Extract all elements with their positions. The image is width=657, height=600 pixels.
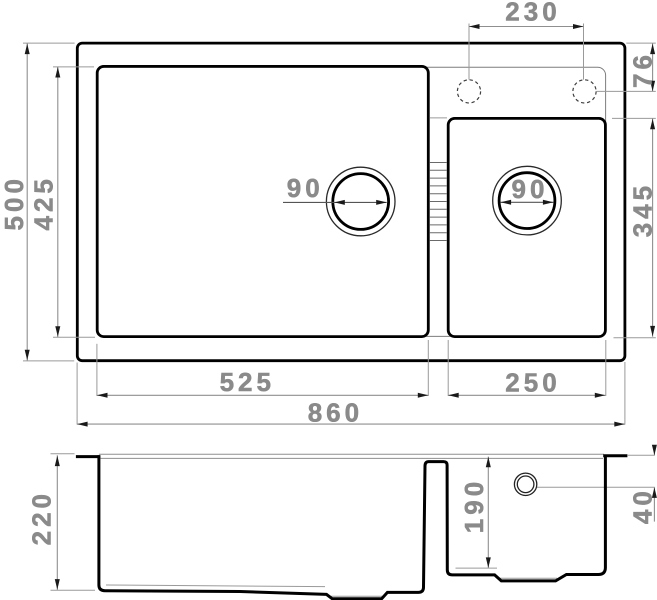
svg-text:860: 860 — [308, 397, 363, 427]
svg-text:190: 190 — [459, 478, 489, 533]
svg-text:90: 90 — [512, 174, 549, 204]
svg-text:230: 230 — [505, 0, 560, 27]
svg-text:500: 500 — [0, 175, 29, 230]
svg-text:425: 425 — [28, 175, 58, 230]
svg-text:345: 345 — [627, 182, 657, 237]
svg-text:525: 525 — [220, 367, 275, 397]
svg-text:76: 76 — [627, 51, 657, 88]
svg-text:40: 40 — [628, 487, 657, 524]
svg-text:220: 220 — [26, 490, 56, 545]
svg-text:90: 90 — [287, 173, 324, 203]
svg-text:250: 250 — [505, 367, 560, 397]
